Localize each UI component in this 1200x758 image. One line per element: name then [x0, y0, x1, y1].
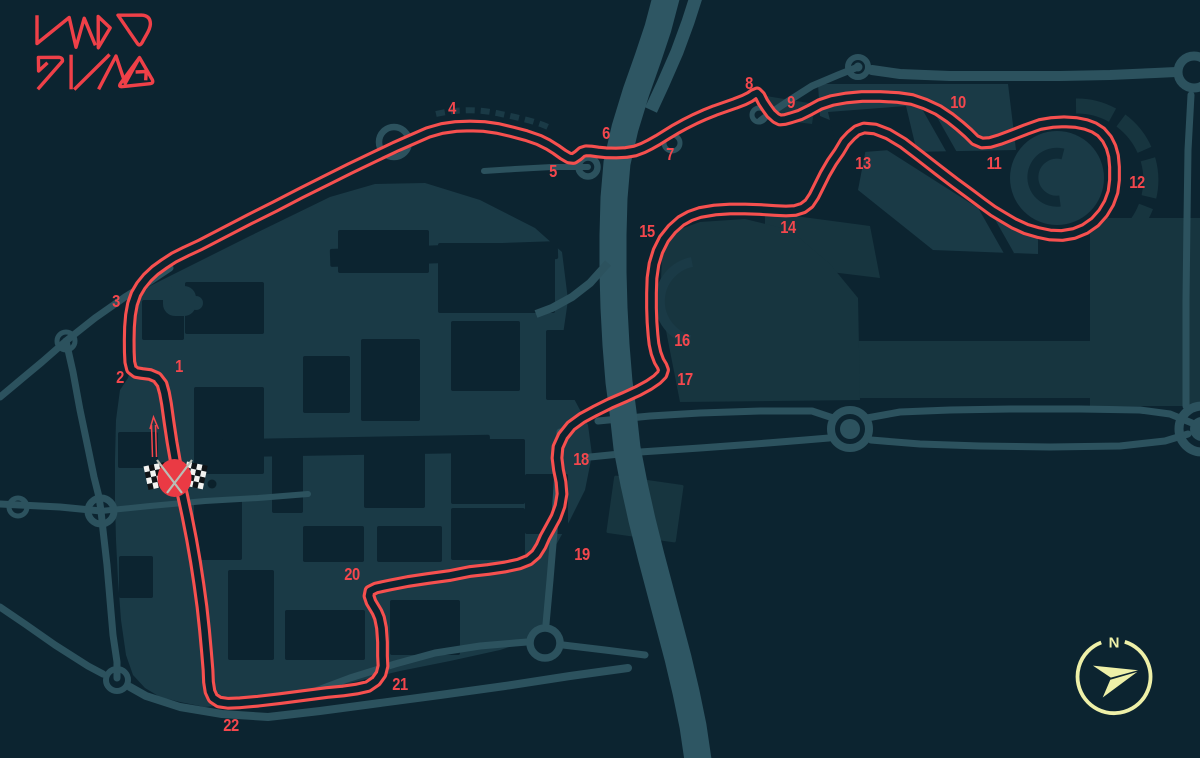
- svg-text:20: 20: [344, 565, 360, 584]
- svg-text:7: 7: [666, 145, 674, 164]
- svg-text:22: 22: [223, 716, 239, 735]
- svg-text:5: 5: [549, 162, 557, 181]
- svg-text:19: 19: [574, 545, 590, 564]
- svg-text:11: 11: [987, 154, 1002, 173]
- svg-text:14: 14: [780, 218, 796, 237]
- svg-text:N: N: [1109, 635, 1120, 652]
- svg-text:6: 6: [602, 124, 610, 143]
- svg-text:4: 4: [448, 99, 456, 118]
- svg-text:2: 2: [116, 368, 124, 387]
- svg-text:12: 12: [1129, 173, 1145, 192]
- svg-text:18: 18: [573, 450, 589, 469]
- svg-text:17: 17: [677, 370, 693, 389]
- svg-text:21: 21: [392, 675, 408, 694]
- svg-text:10: 10: [950, 93, 966, 112]
- svg-text:1: 1: [175, 357, 183, 376]
- svg-text:13: 13: [855, 154, 871, 173]
- svg-text:16: 16: [674, 331, 690, 350]
- svg-text:8: 8: [745, 74, 753, 93]
- svg-text:9: 9: [787, 93, 795, 112]
- svg-text:15: 15: [639, 222, 655, 241]
- svg-text:3: 3: [112, 292, 120, 311]
